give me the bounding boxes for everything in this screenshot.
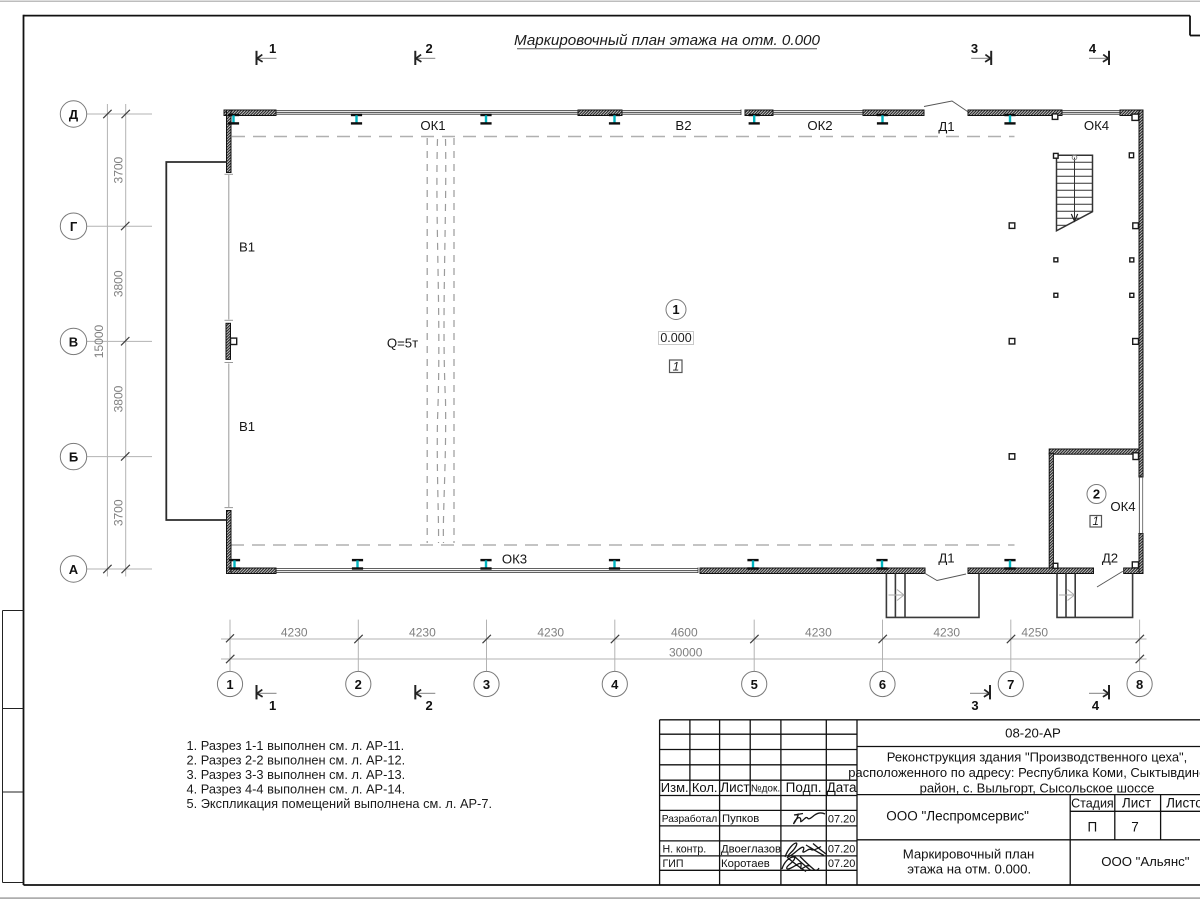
svg-text:3700: 3700 (111, 499, 125, 526)
svg-text:2: 2 (355, 677, 362, 692)
svg-text:4230: 4230 (537, 625, 564, 639)
svg-text:4. Разрез 4-4 выполнен см. л.: 4. Разрез 4-4 выполнен см. л. АР-14. (187, 782, 406, 797)
svg-text:5: 5 (751, 677, 758, 692)
svg-text:08-20-АР: 08-20-АР (1005, 726, 1061, 741)
svg-text:1: 1 (269, 41, 276, 56)
svg-text:1: 1 (672, 302, 679, 317)
svg-text:3800: 3800 (111, 270, 125, 297)
svg-text:В2: В2 (675, 118, 691, 133)
svg-text:3: 3 (483, 677, 490, 692)
svg-text:Подп.: Подп. (786, 780, 822, 795)
svg-text:07.20: 07.20 (828, 813, 856, 825)
svg-text:Маркировочный план: Маркировочный план (903, 847, 1035, 862)
svg-text:4250: 4250 (1021, 625, 1048, 639)
svg-text:ОК2: ОК2 (807, 118, 832, 133)
svg-text:4600: 4600 (671, 625, 698, 639)
svg-text:3700: 3700 (111, 156, 125, 183)
svg-text:Листов: Листов (1166, 796, 1200, 811)
svg-text:этажа на отм. 0.000.: этажа на отм. 0.000. (907, 862, 1031, 877)
svg-text:2: 2 (1093, 487, 1100, 502)
svg-text:4230: 4230 (281, 625, 308, 639)
svg-text:Б: Б (69, 450, 78, 465)
svg-text:район, с. Выльгорт, Сысольское: район, с. Выльгорт, Сысольское шоссе (920, 781, 1155, 796)
svg-text:Маркировочный план этажа на от: Маркировочный план этажа на отм. 0.000 (514, 32, 820, 49)
svg-text:8: 8 (1136, 677, 1143, 692)
svg-text:расположенного по адресу: Респ: расположенного по адресу: Республика Ком… (848, 765, 1200, 780)
svg-text:А: А (69, 562, 79, 577)
svg-text:3: 3 (971, 698, 978, 713)
svg-text:ООО "Альянс": ООО "Альянс" (1101, 854, 1189, 869)
svg-text:ГИП: ГИП (663, 858, 684, 870)
svg-text:Коротаев: Коротаев (721, 858, 770, 870)
svg-text:4230: 4230 (409, 625, 436, 639)
svg-text:ОК1: ОК1 (420, 118, 445, 133)
svg-text:7: 7 (1007, 677, 1014, 692)
svg-text:Двоеглазов: Двоеглазов (721, 843, 781, 855)
svg-text:Пупков: Пупков (722, 813, 759, 825)
svg-text:15000: 15000 (92, 324, 106, 358)
svg-text:3. Разрез 3-3 выполнен см. л.: 3. Разрез 3-3 выполнен см. л. АР-13. (187, 767, 406, 782)
svg-text:2. Разрез 2-2 выполнен см. л.: 2. Разрез 2-2 выполнен см. л. АР-12. (187, 753, 406, 768)
svg-text:Изм.: Изм. (661, 780, 689, 795)
svg-text:30000: 30000 (669, 645, 703, 659)
svg-text:4: 4 (1089, 41, 1097, 56)
svg-text:1: 1 (1092, 516, 1098, 528)
svg-text:ОК4: ОК4 (1084, 118, 1109, 133)
svg-text:3800: 3800 (111, 385, 125, 412)
svg-text:0.000: 0.000 (660, 331, 691, 345)
svg-text:Лист: Лист (1122, 796, 1151, 811)
svg-text:1: 1 (226, 677, 233, 692)
svg-text:5. Экспликация помещений выпол: 5. Экспликация помещений выполнена см. л… (187, 796, 493, 811)
svg-text:В: В (69, 334, 78, 349)
svg-text:Разработал: Разработал (662, 813, 718, 825)
svg-text:Реконструкция здания "Производ: Реконструкция здания "Производственного … (887, 749, 1188, 764)
svg-text:Дата: Дата (827, 780, 857, 795)
svg-text:3: 3 (971, 41, 978, 56)
svg-text:1. Разрез 1-1 выполнен см. л.: 1. Разрез 1-1 выполнен см. л. АР-11. (187, 738, 405, 753)
svg-text:ООО "Леспромсервис": ООО "Леспромсервис" (886, 809, 1029, 824)
svg-text:1: 1 (673, 360, 680, 374)
svg-text:Кол.: Кол. (692, 780, 718, 795)
svg-text:Г: Г (70, 219, 78, 234)
svg-text:4230: 4230 (805, 625, 832, 639)
svg-text:Лист: Лист (720, 780, 749, 795)
svg-text:4: 4 (1092, 698, 1100, 713)
svg-text:П: П (1088, 820, 1098, 835)
svg-text:07.20: 07.20 (828, 843, 856, 855)
svg-text:2: 2 (426, 698, 433, 713)
svg-text:Д1: Д1 (938, 119, 954, 134)
svg-text:Стадия: Стадия (1071, 797, 1114, 811)
svg-text:№док.: №док. (751, 784, 780, 795)
svg-text:В1: В1 (239, 240, 255, 255)
svg-text:2: 2 (426, 41, 433, 56)
svg-text:ОК4: ОК4 (1110, 499, 1135, 514)
svg-text:7: 7 (1131, 820, 1139, 835)
svg-text:4: 4 (611, 677, 619, 692)
svg-text:4230: 4230 (933, 625, 960, 639)
svg-text:6: 6 (879, 677, 886, 692)
svg-text:Н. контр.: Н. контр. (663, 843, 707, 855)
svg-text:Д1: Д1 (938, 551, 954, 566)
svg-text:1: 1 (269, 698, 276, 713)
svg-text:В1: В1 (239, 419, 255, 434)
svg-text:Q=5т: Q=5т (387, 336, 418, 351)
svg-text:07.20: 07.20 (828, 858, 856, 870)
svg-text:Д: Д (69, 107, 79, 122)
svg-text:ОК3: ОК3 (502, 552, 527, 567)
svg-text:Д2: Д2 (1102, 551, 1118, 566)
